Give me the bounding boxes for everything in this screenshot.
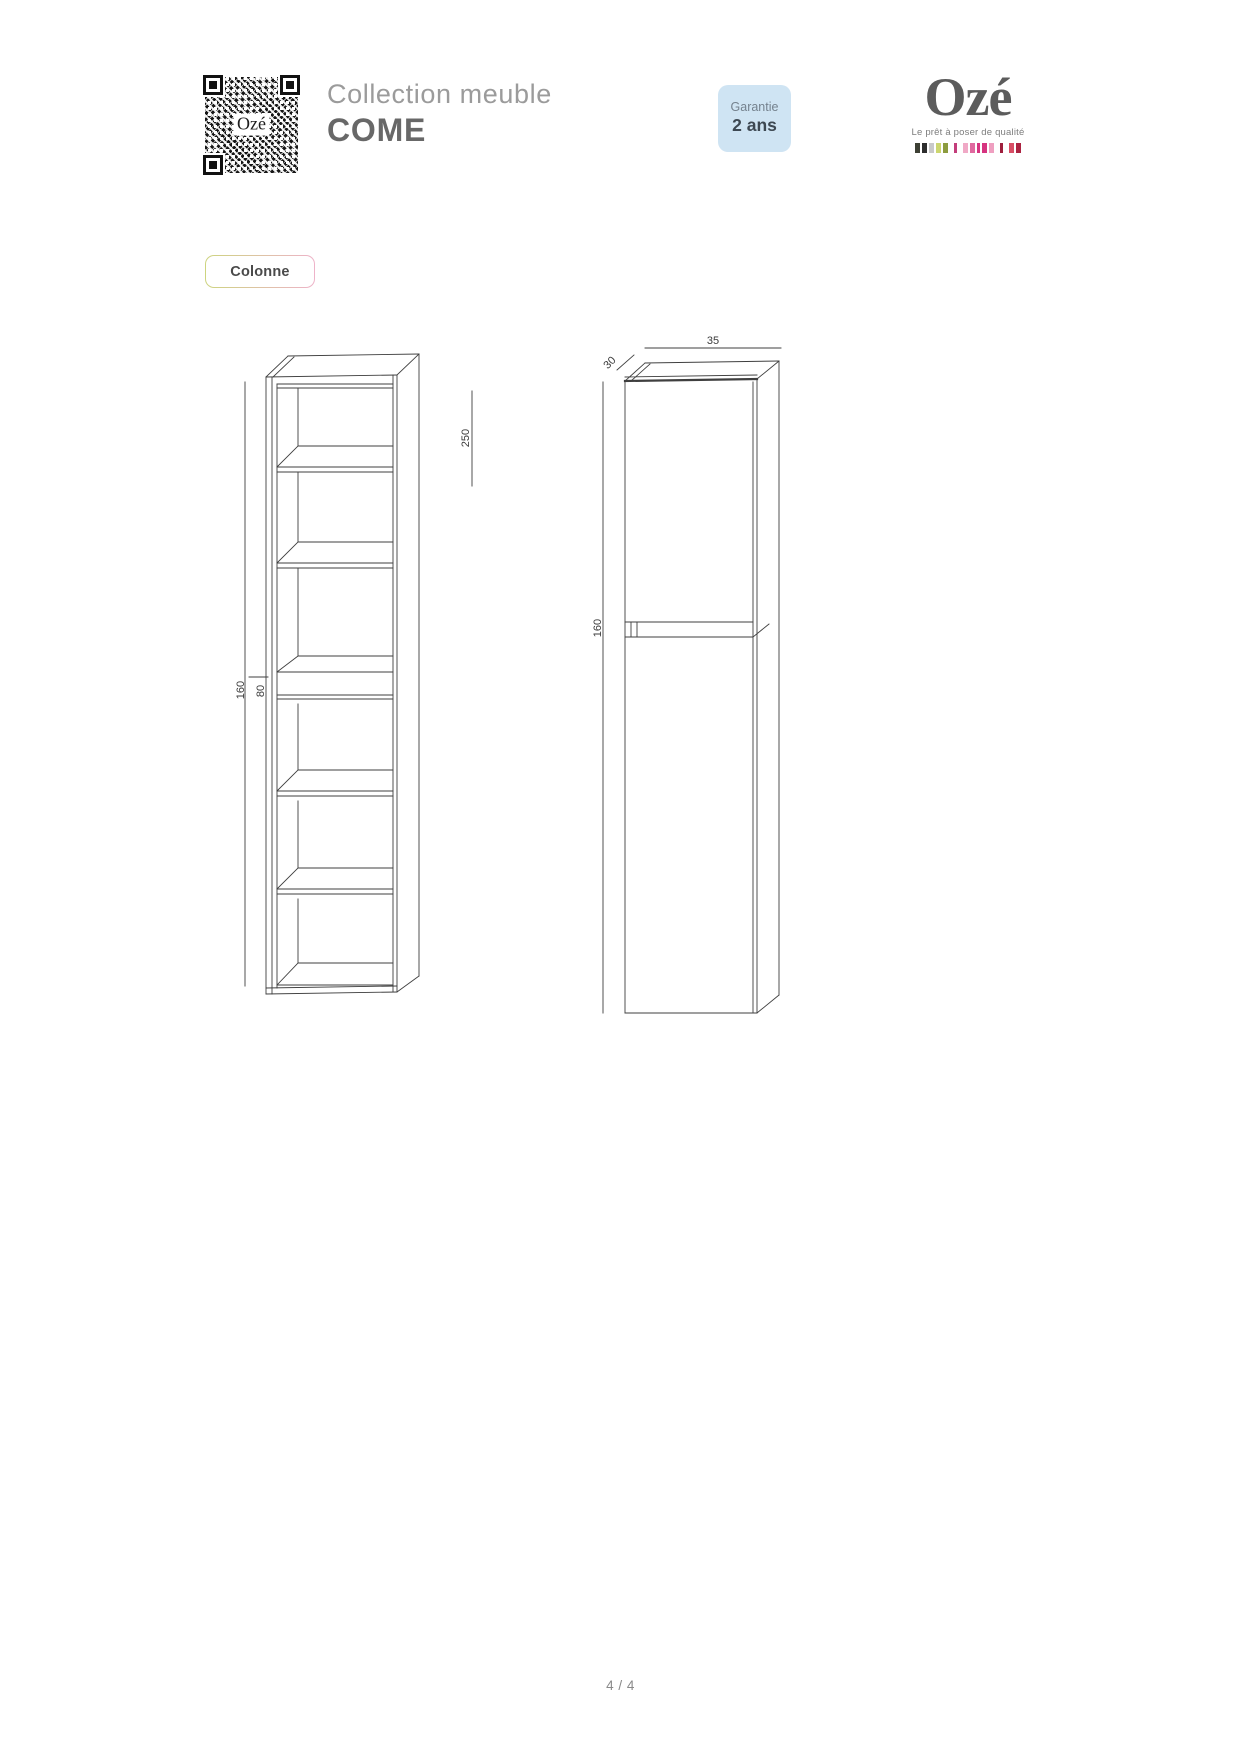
qr-finder-top-right-icon (280, 75, 300, 95)
dim-front-total-height-label: 160 (235, 681, 247, 699)
brand-palette (893, 143, 1043, 153)
brand-logo: Ozé Le prêt à poser de qualité (893, 70, 1043, 153)
qr-finder-top-left-icon (203, 75, 223, 95)
brand-name: Ozé (893, 70, 1043, 124)
document-page: Ozé Collection meuble COME Garantie 2 an… (0, 0, 1241, 1754)
palette-swatch (929, 143, 934, 153)
palette-swatch (936, 143, 941, 153)
collection-label: Collection meuble (327, 80, 552, 110)
palette-swatch (982, 143, 987, 153)
technical-drawings: 160 80 250 160 35 30 (200, 300, 850, 1060)
palette-swatch (922, 143, 927, 153)
palette-swatch (989, 143, 994, 153)
dim-front-mid-height-label: 80 (255, 685, 267, 697)
warranty-duration: 2 ans (732, 115, 777, 137)
dim-side-width-label: 35 (707, 335, 719, 347)
dim-front-clearance-label: 250 (460, 429, 472, 447)
warranty-title: Garantie (731, 100, 779, 115)
palette-swatch (977, 143, 980, 153)
brand-tagline: Le prêt à poser de qualité (893, 127, 1043, 138)
section-label: Colonne (206, 256, 314, 287)
palette-swatch (1000, 143, 1003, 153)
palette-swatch (1016, 143, 1021, 153)
qr-center-label: Ozé (233, 114, 270, 136)
palette-swatch (915, 143, 920, 153)
qr-finder-bottom-left-icon (203, 155, 223, 175)
warranty-badge: Garantie 2 ans (718, 85, 791, 152)
title-block: Collection meuble COME (327, 80, 552, 148)
palette-swatch (1009, 143, 1014, 153)
drawing-front-view (245, 354, 472, 994)
palette-swatch (963, 143, 968, 153)
palette-swatch (954, 143, 957, 153)
dim-side-total-height-label: 160 (592, 619, 604, 637)
qr-code: Ozé (203, 75, 300, 175)
drawing-perspective-view (603, 348, 781, 1013)
page-indicator: 4 / 4 (0, 1678, 1241, 1693)
collection-name: COME (327, 112, 552, 149)
dim-side-depth-label: 30 (601, 354, 618, 371)
palette-swatch (970, 143, 975, 153)
section-chip: Colonne (205, 255, 315, 288)
palette-swatch (943, 143, 948, 153)
